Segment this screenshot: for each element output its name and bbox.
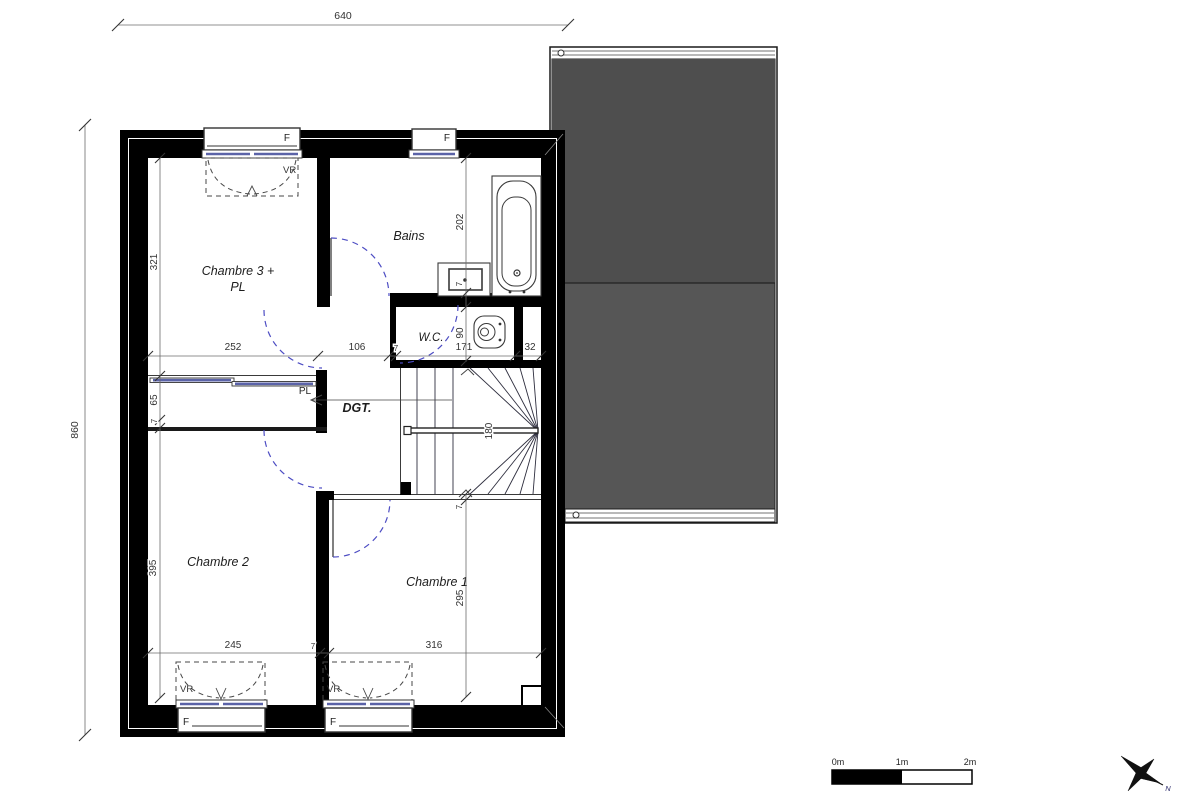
floor-plan-page: F VR F VR F VR [0,0,1185,800]
closet-label: PL [299,386,312,397]
compass-star-icon [1121,756,1160,791]
window-frame [178,708,265,732]
dim-7: 7 [394,344,399,353]
wall-top [120,130,565,158]
stair-newel-post [400,482,411,495]
shutter-label: VR [283,165,296,176]
dim-7: 7 [455,504,464,509]
compass-north-label: N [1165,784,1171,793]
scale-0m: 0m [832,757,845,767]
wall-closet-bottom [148,427,327,431]
scale-2m: 2m [964,757,977,767]
stair-rail [405,428,538,433]
dim-395: 395 [148,559,159,576]
roof-slope-upper [552,59,775,283]
stair-rail-cap [404,427,411,435]
dim-7: 7 [455,281,464,286]
downspout-icon [573,512,579,518]
room-label-wc: W.C. [418,332,443,344]
room-label-chambre3: Chambre 3 + [202,264,275,278]
window-frame [325,708,412,732]
dim-180: 180 [484,422,495,439]
dim-7: 7 [150,418,159,423]
dim-90: 90 [455,327,466,339]
scale-bar-filled [832,770,902,784]
wall-left [120,130,148,737]
shutter-label: VR [180,684,193,695]
wall-chambre1-top-stub [316,491,334,500]
window-bains: F [409,129,459,158]
wall-chambre3-bains [317,158,330,307]
dim-65: 65 [149,394,160,406]
window-label: F [330,717,336,728]
corner-post [522,686,542,706]
room-label-chambre2: Chambre 2 [187,555,249,569]
dim-171: 171 [456,342,473,353]
bathtub-drain-dot [516,272,518,274]
floor-plan-canvas: F VR F VR F VR [0,0,1185,800]
toilet-icon [474,316,505,348]
dim-7: 7 [311,642,316,651]
wall-right [541,130,565,737]
shutter-label: VR [327,684,340,695]
gutter-band [565,509,775,522]
window-label: F [183,717,189,728]
room-label-chambre3-pl: PL [230,280,245,294]
wall-closet-right [316,370,327,433]
downspout-icon [558,50,564,56]
fixture-dot [509,291,512,294]
dim-316: 316 [426,640,443,651]
fixture-dot [499,339,502,342]
dim-106: 106 [349,342,366,353]
scale-bar: 0m 1m 2m [832,757,977,784]
wall-chambre2-chambre1 [316,497,329,705]
fixture-dot [523,291,526,294]
fixture-dot [499,323,502,326]
compass: N [1121,756,1171,793]
room-label-dgt: DGT. [343,401,372,415]
room-label-bains: Bains [393,229,424,243]
compass-needle [1147,777,1163,785]
dim-640: 640 [334,10,352,22]
dim-245: 245 [225,640,242,651]
dim-295: 295 [455,589,466,606]
dim-202: 202 [455,213,466,230]
room-label-chambre1: Chambre 1 [406,575,468,589]
dim-252: 252 [225,342,242,353]
window-label: F [444,133,450,144]
window-label: F [284,133,290,144]
scale-1m: 1m [896,757,909,767]
roof-area [550,47,777,523]
dim-860: 860 [69,421,81,439]
dim-32: 32 [524,342,536,353]
dim-321: 321 [149,253,160,270]
